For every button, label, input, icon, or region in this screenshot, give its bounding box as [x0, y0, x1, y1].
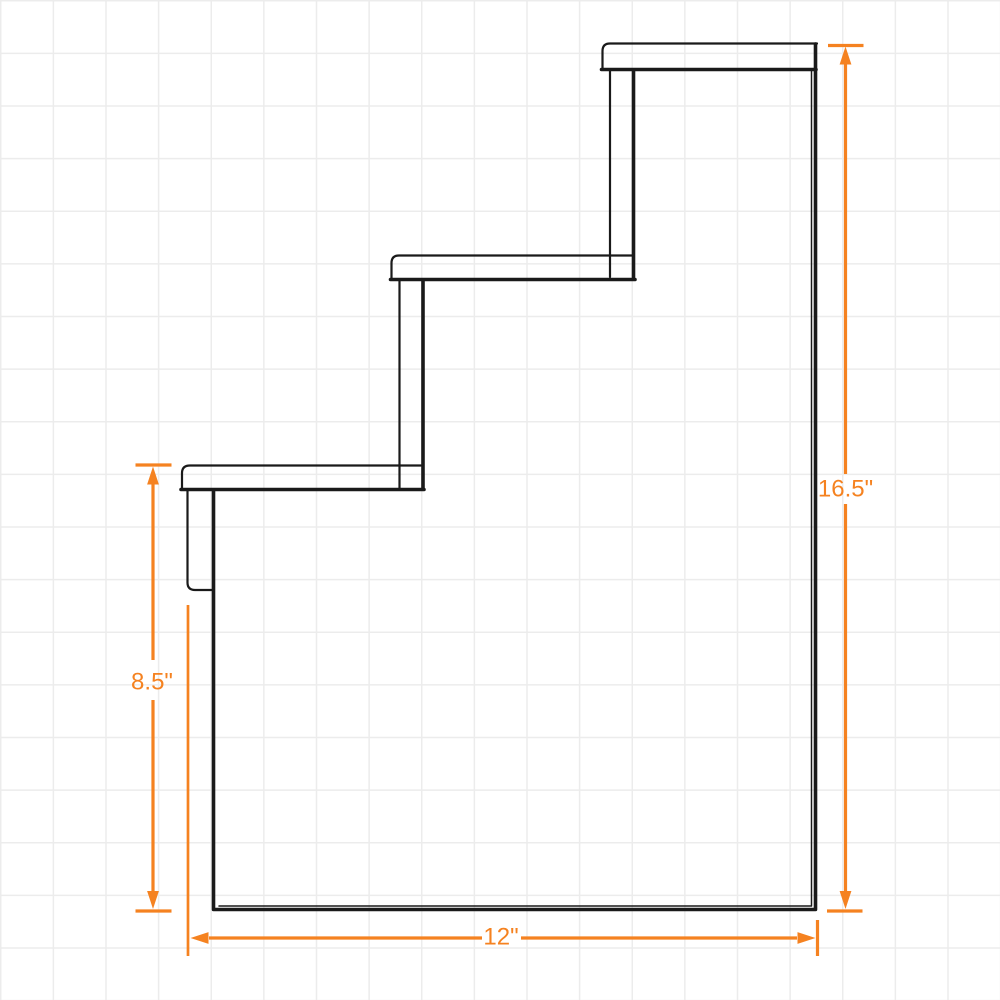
front-apron — [188, 491, 213, 590]
dim-depth-arrow-left-icon — [191, 932, 209, 944]
top-step-tread — [603, 44, 818, 69]
lower-height-label: 8.5" — [131, 669, 173, 696]
blueprint-canvas: 16.5" 8.5" 12" — [0, 0, 1000, 1000]
dim-overall-arrow-down-icon — [840, 891, 852, 909]
dim-lower-arrow-down-icon — [147, 891, 159, 909]
stairs-outline — [181, 44, 817, 910]
dim-depth-arrow-right-icon — [798, 932, 816, 944]
middle-step-tread — [392, 256, 633, 279]
dim-overall-arrow-up-icon — [840, 47, 852, 65]
bottom-step-tread — [182, 466, 421, 489]
base-depth-label: 12" — [483, 924, 518, 951]
overall-height-label: 16.5" — [818, 476, 873, 503]
body-outline — [214, 44, 816, 910]
step-stool-side-view-diagram: 16.5" 8.5" 12" — [0, 0, 1000, 1000]
dim-lower-arrow-up-icon — [147, 467, 159, 485]
dimension-arrowheads-and-labels: 16.5" 8.5" 12" — [131, 47, 873, 951]
dimension-lines — [136, 46, 864, 957]
